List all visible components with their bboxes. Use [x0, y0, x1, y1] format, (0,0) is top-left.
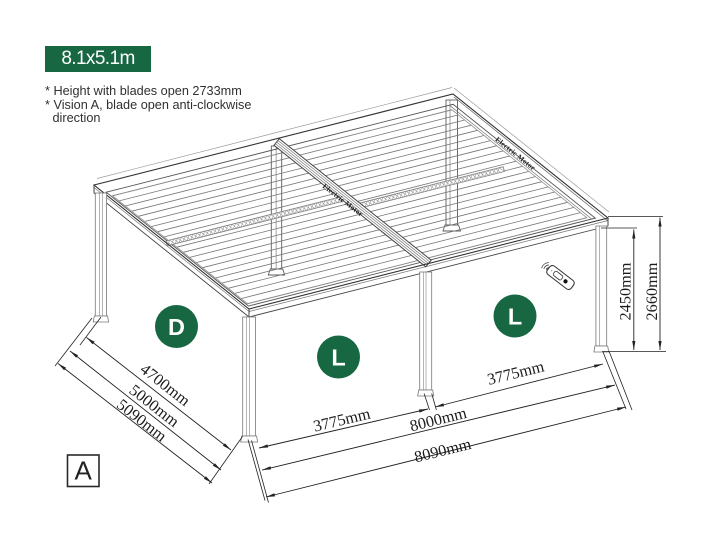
svg-text:D: D — [168, 314, 185, 340]
svg-text:8090mm: 8090mm — [412, 434, 473, 467]
svg-text:3775mm: 3775mm — [485, 356, 546, 389]
svg-text:A: A — [75, 456, 93, 486]
svg-text:8000mm: 8000mm — [408, 403, 469, 436]
svg-text:2450mm: 2450mm — [616, 262, 635, 320]
svg-text:L: L — [508, 303, 522, 329]
svg-text:3775mm: 3775mm — [311, 404, 372, 436]
svg-text:2660mm: 2660mm — [642, 262, 661, 320]
svg-text:L: L — [331, 344, 345, 370]
